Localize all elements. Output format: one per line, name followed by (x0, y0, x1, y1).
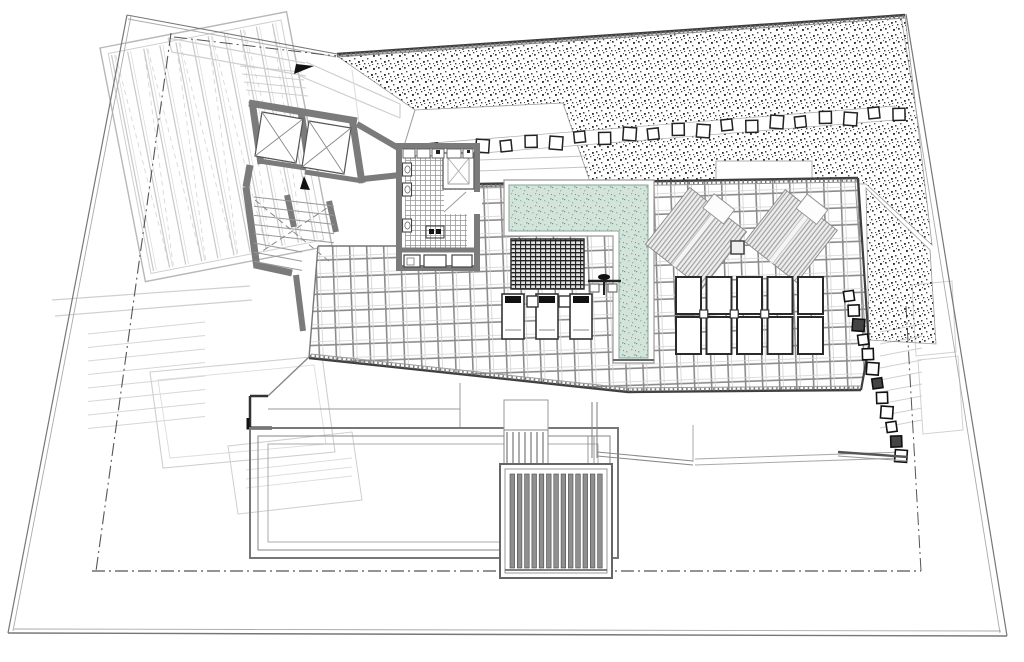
louvered-skylight (500, 464, 612, 578)
north-arrow-icon (294, 64, 314, 74)
site-plan-drawing (0, 0, 1024, 662)
site-plan-page (0, 0, 1024, 662)
service-rooms-block (399, 146, 482, 268)
